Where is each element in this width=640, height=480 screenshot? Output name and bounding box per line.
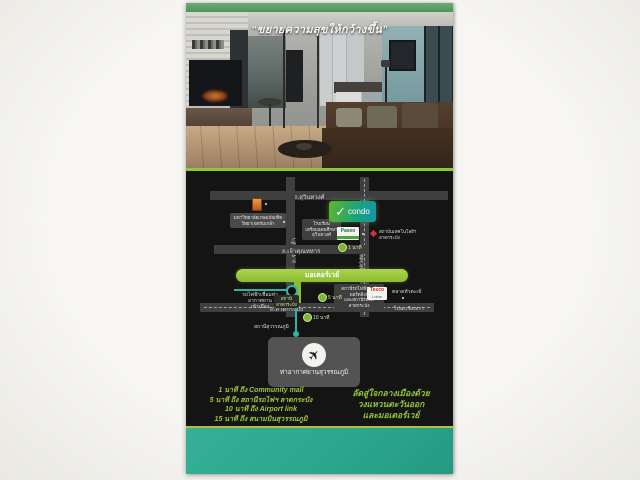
five-minute-marker	[318, 293, 327, 302]
photo-glass-partition-2	[317, 28, 319, 128]
interior-photo: “ขยายความสุขให้กว้างขึ้น”	[186, 12, 453, 168]
road-suwinthawong	[210, 191, 448, 200]
shortcut-tagline: ลัดสู่ใจกลางเมืองด้วย วงแหวนตะวันออก และ…	[336, 388, 446, 421]
tesco-lotus-logo: Tesco Lotus	[367, 287, 387, 300]
kmitl-line1: สถาบันเทคโนโลยีฯ	[379, 229, 416, 234]
suvarnabhumi-airport-box: ✈ ท่าอากาศยานสุวรรณภูมิ	[268, 337, 360, 387]
kmitl-label: สถาบันเทคโนโลยีฯ ลาดกระบัง	[379, 229, 416, 240]
travel-time-item: 15 นาที ถึง สนามบินสุวรรณภูมิ	[215, 416, 308, 423]
map-dot	[362, 233, 364, 235]
tagline-line3: และมอเตอร์เวย์	[363, 410, 420, 420]
motorway-band: มอเตอร์เวย์	[236, 269, 408, 282]
five-minute-label: 5 นาที	[328, 294, 342, 302]
one-minute-label: 1 นาที	[348, 244, 362, 252]
ten-minute-marker	[303, 313, 312, 322]
travel-time-item: 5 นาที ถึง สถานีรถไฟฯ ลาดกระบัง	[210, 397, 313, 404]
photo-cushion	[367, 106, 397, 129]
kasem-bundit-line1: มหาวิทยาลัยเกษมบัณฑิต	[234, 215, 282, 220]
photo-bookshelf	[192, 40, 224, 49]
road-label-suwinthawong: ถ.สุวินทวงศ์	[294, 192, 325, 202]
one-minute-marker	[338, 243, 347, 252]
map-dot	[283, 221, 285, 223]
v-condo-name: condo	[348, 208, 370, 216]
photo-bar-table-leg	[269, 104, 271, 126]
airplane-circle: ✈	[302, 343, 326, 367]
photo-fireplace-glow	[202, 90, 228, 102]
tagline-line1: ลัดสู่ใจกลางเมืองด้วย	[352, 388, 429, 398]
school-line3: สุวินทวงศ์	[312, 232, 331, 237]
road-label-chaokhun-thahan: ถ.เจ้าคุณทหาร	[282, 246, 320, 256]
location-map: ถ.สุวินทวงศ์ ถ.ร่มเกล้า ถ.หลวงแพ่ง ถ.เจ้…	[186, 171, 453, 426]
paseo-mall-name: Paseo	[337, 227, 359, 236]
school-box: โรงเรียน เตรียมอุดมศึกษา สุวินทวงศ์	[302, 219, 341, 240]
map-dot	[402, 297, 404, 299]
market-logo-icon	[253, 199, 261, 210]
photo-sofa-seat	[322, 128, 453, 168]
kasem-bundit-box: มหาวิทยาลัยเกษมบัณฑิต วิทยาเขตร่มเกล้า	[230, 213, 286, 228]
airport-label: ท่าอากาศยานสุวรรณภูมิ	[268, 369, 360, 377]
photo-glass-partition	[283, 28, 285, 128]
school-line2: เตรียมอุดมศึกษา	[305, 227, 337, 232]
suvarnabhumi-station-label: สถานีสุวรรณภูมิ	[254, 324, 289, 330]
paseo-green-bar	[337, 236, 359, 239]
kmitl-line2: ลาดกระบัง	[379, 235, 400, 240]
motorway-label: มอเตอร์เวย์	[236, 269, 408, 282]
ten-minute-label: 10 นาที	[313, 314, 329, 322]
travel-time-item: 10 นาที ถึง Airport link	[225, 406, 297, 413]
photo-chalkboard	[286, 50, 303, 102]
rail-city-link-line1: รถไฟฟ้าเชื่อมท่าอากาศยาน	[242, 292, 278, 304]
station-label-line1: สถานี	[281, 296, 292, 301]
photo-cushion	[336, 108, 362, 127]
bottom-teal-band	[186, 428, 453, 474]
rail-city-link-line2: เข้าเมือง	[251, 304, 269, 310]
station-label-box: สถานี ลาดกระบัง	[274, 295, 299, 308]
paseo-mall-logo: Paseo	[337, 227, 359, 240]
tesco-text: Tesco	[367, 287, 387, 294]
hua-takhe-label: ตลาดหัวตะเข้	[392, 289, 422, 295]
tagline-line2: วงแหวนตะวันออก	[358, 399, 425, 409]
airplane-icon: ✈	[305, 346, 323, 364]
top-green-band	[186, 3, 453, 12]
photo-cushion	[402, 103, 438, 130]
kmitl-marker-icon	[370, 230, 377, 237]
v-condo-logo: ✓ condo	[329, 201, 376, 222]
travel-time-item: 1 นาที ถึง Community mall	[218, 387, 303, 394]
travel-time-list: 1 นาที ถึง Community mall 5 นาที ถึง สถา…	[196, 386, 326, 424]
headline-quote: “ขยายความสุขให้กว้างขึ้น”	[186, 20, 453, 38]
school-line1: โรงเรียน	[313, 221, 330, 226]
road-label-to-chachoengsao: ไปฉะเชิงเทรา	[394, 305, 424, 313]
scanned-page-background: “ขยายความสุขให้กว้างขึ้น” ถ.สุวินทวงศ์ ถ…	[0, 0, 640, 480]
photo-coffee-tray	[296, 143, 312, 150]
station-label-line2: ลาดกระบัง	[276, 302, 297, 307]
photo-wall-art	[389, 40, 416, 71]
map-dot	[265, 203, 267, 205]
photo-lamp-head	[381, 60, 390, 67]
airport-link-line3: ลาดกระบัง	[349, 303, 370, 308]
kasem-bundit-line2: วิทยาเขตร่มเกล้า	[241, 221, 274, 226]
lotus-text: Lotus	[367, 294, 387, 299]
v-condo-check-icon: ✓	[335, 205, 346, 218]
brochure: “ขยายความสุขให้กว้างขึ้น” ถ.สุวินทวงศ์ ถ…	[186, 3, 453, 474]
